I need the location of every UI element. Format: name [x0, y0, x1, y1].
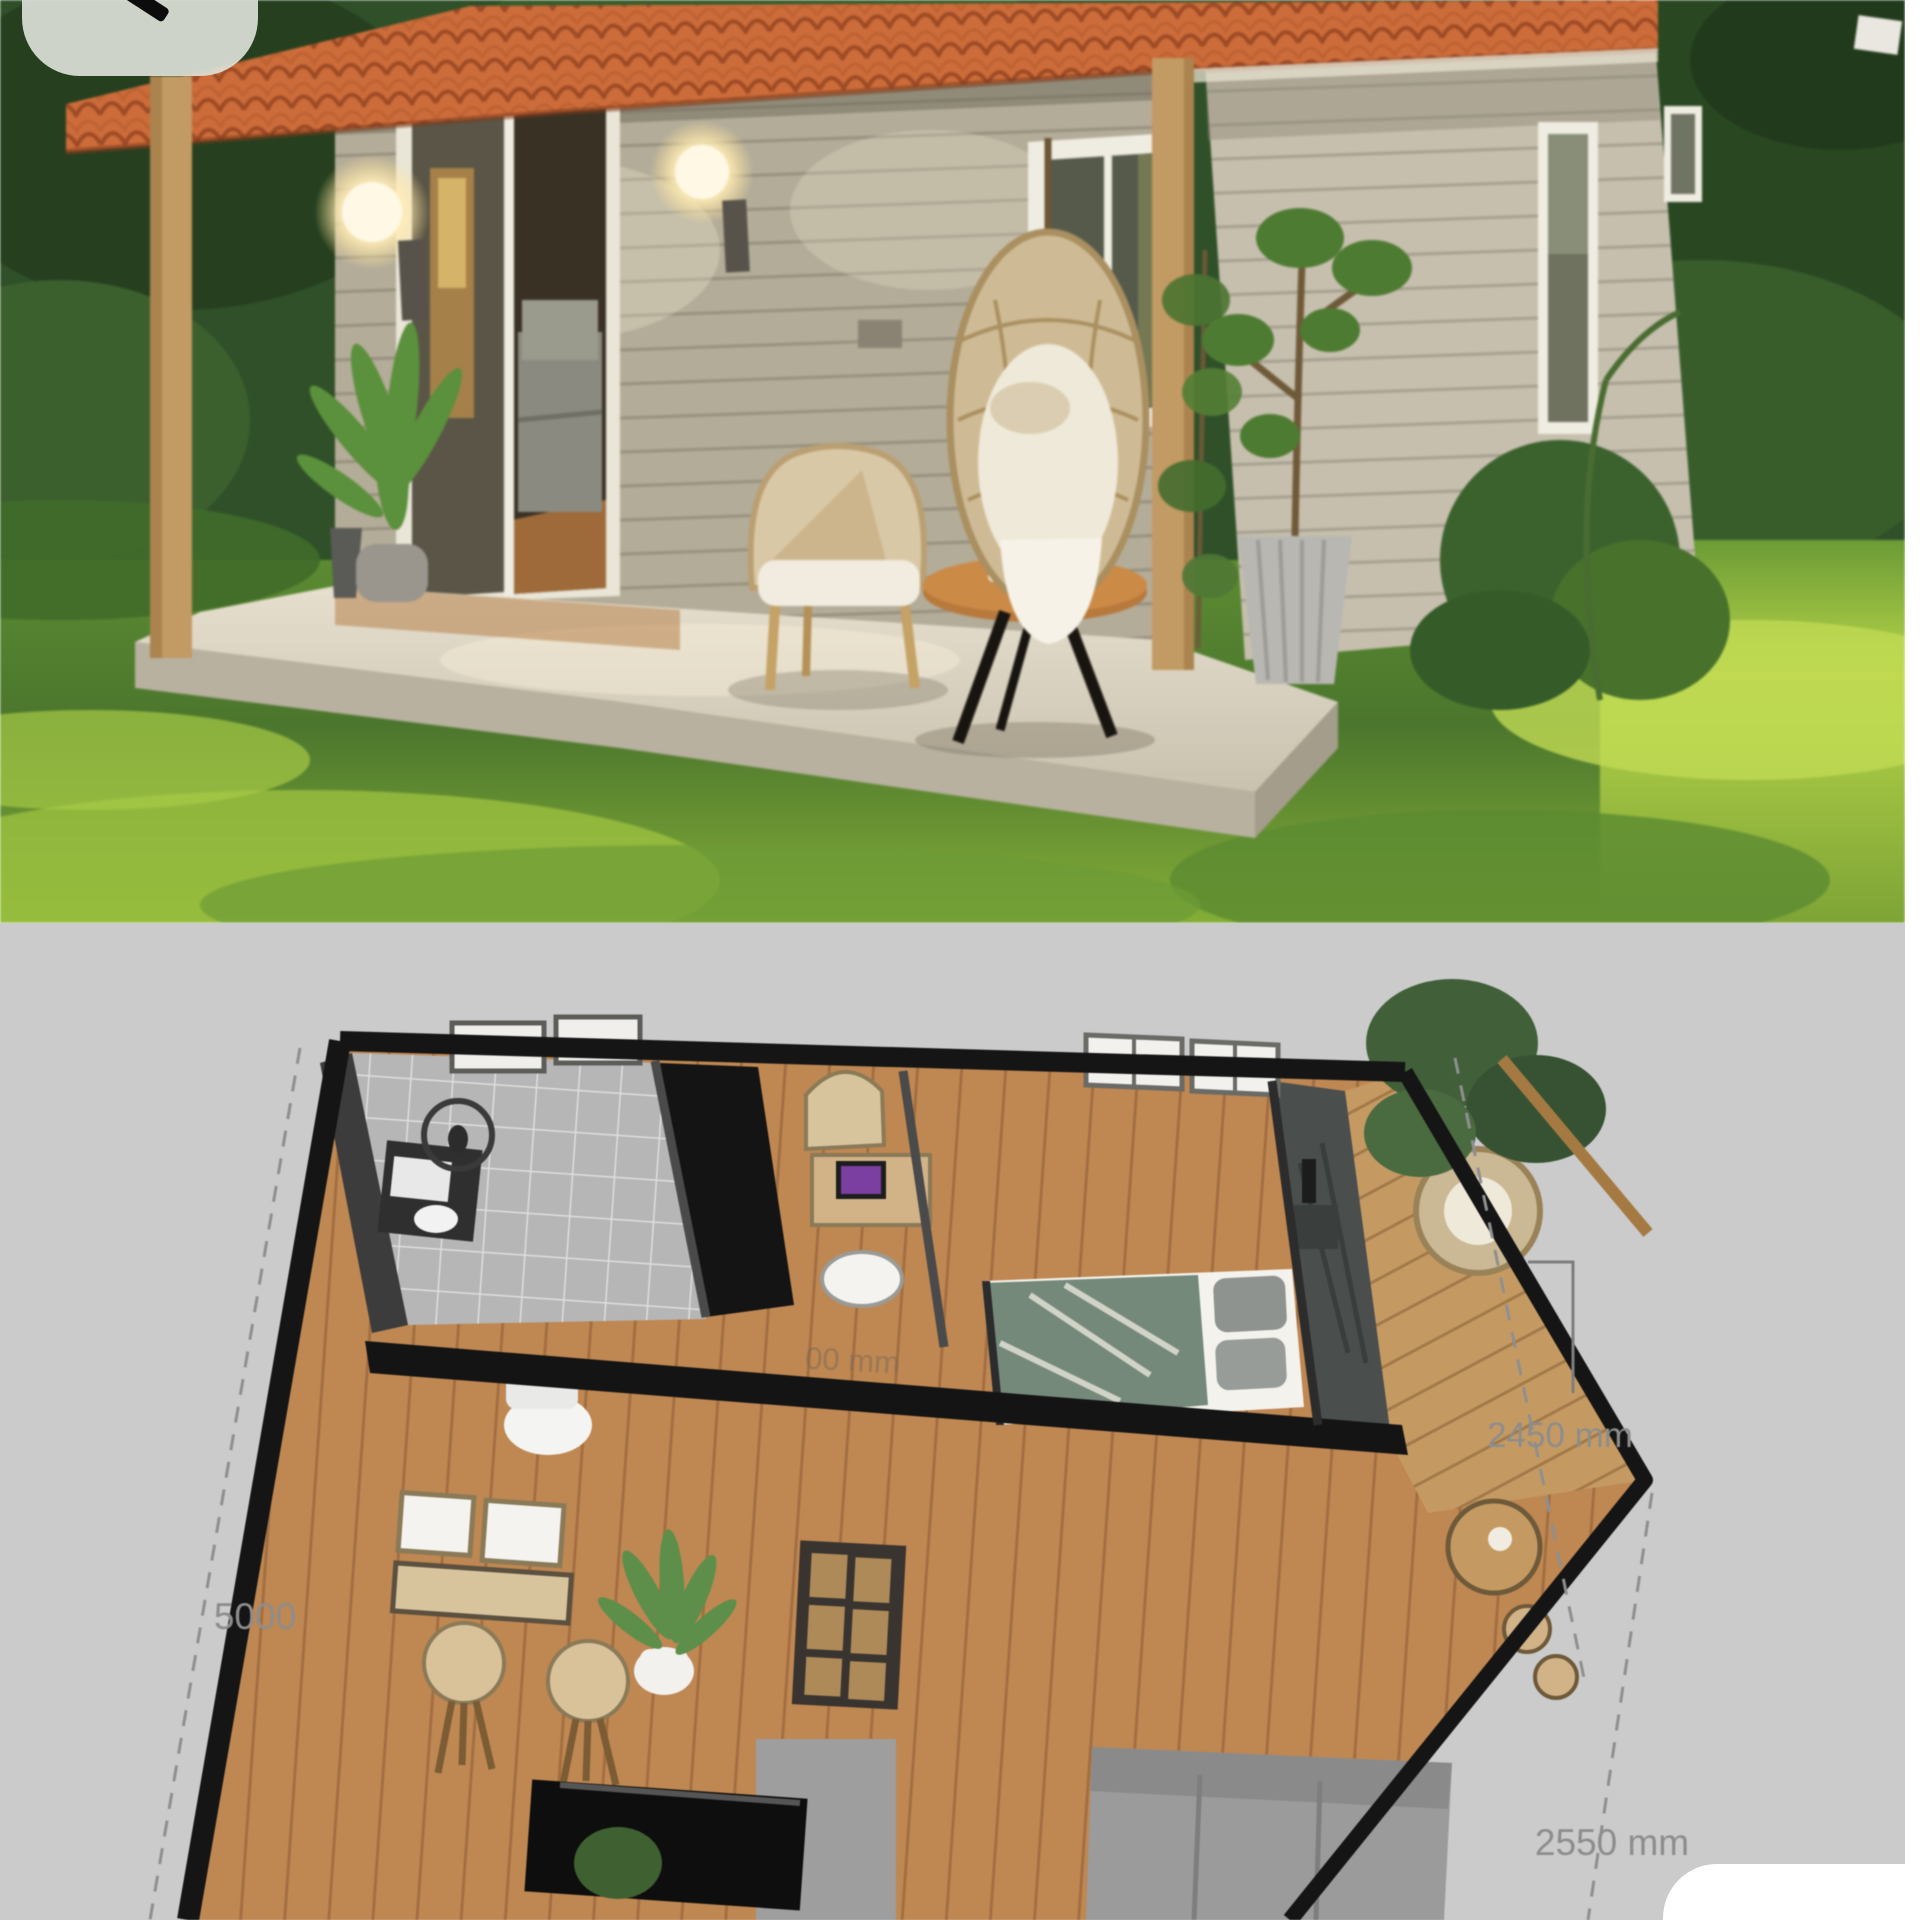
entry-door — [792, 1540, 906, 1709]
dim-label-right: 2450 mm — [1487, 1416, 1633, 1455]
glass-door — [396, 88, 620, 604]
bottom-right-card[interactable] — [1663, 1864, 1920, 1920]
dim-watermark: 00 mm — [804, 1341, 900, 1381]
desk-chair — [822, 1252, 902, 1306]
right-edge-strip — [1905, 0, 1920, 1920]
house-photo-svg — [0, 0, 1905, 923]
floor-plan-image: 5000 2450 mm 2550 mm 00 mm — [0, 923, 1905, 1920]
dim-label-left: 5000 — [214, 1596, 296, 1637]
small-plant — [574, 1827, 662, 1899]
sofa — [1086, 1747, 1452, 1920]
arch-mirror — [806, 1072, 884, 1149]
back-button[interactable] — [22, 0, 258, 76]
dim-label-bottom: 2550 mm — [1535, 1822, 1689, 1863]
floor-plan-svg: 5000 2450 mm 2550 mm 00 mm — [0, 923, 1905, 1920]
tv-unit — [524, 1780, 807, 1911]
back-arrow-icon — [122, 0, 170, 23]
wall-vent — [858, 320, 902, 348]
gable-door-window — [1538, 122, 1598, 434]
interior-sofa — [518, 300, 602, 512]
nightstand — [1294, 1205, 1338, 1249]
app-screen: 5000 2450 mm 2550 mm 00 mm — [0, 0, 1920, 1920]
house-photo — [0, 0, 1905, 923]
laptop-screen — [841, 1166, 881, 1194]
sideboard — [393, 1563, 572, 1623]
